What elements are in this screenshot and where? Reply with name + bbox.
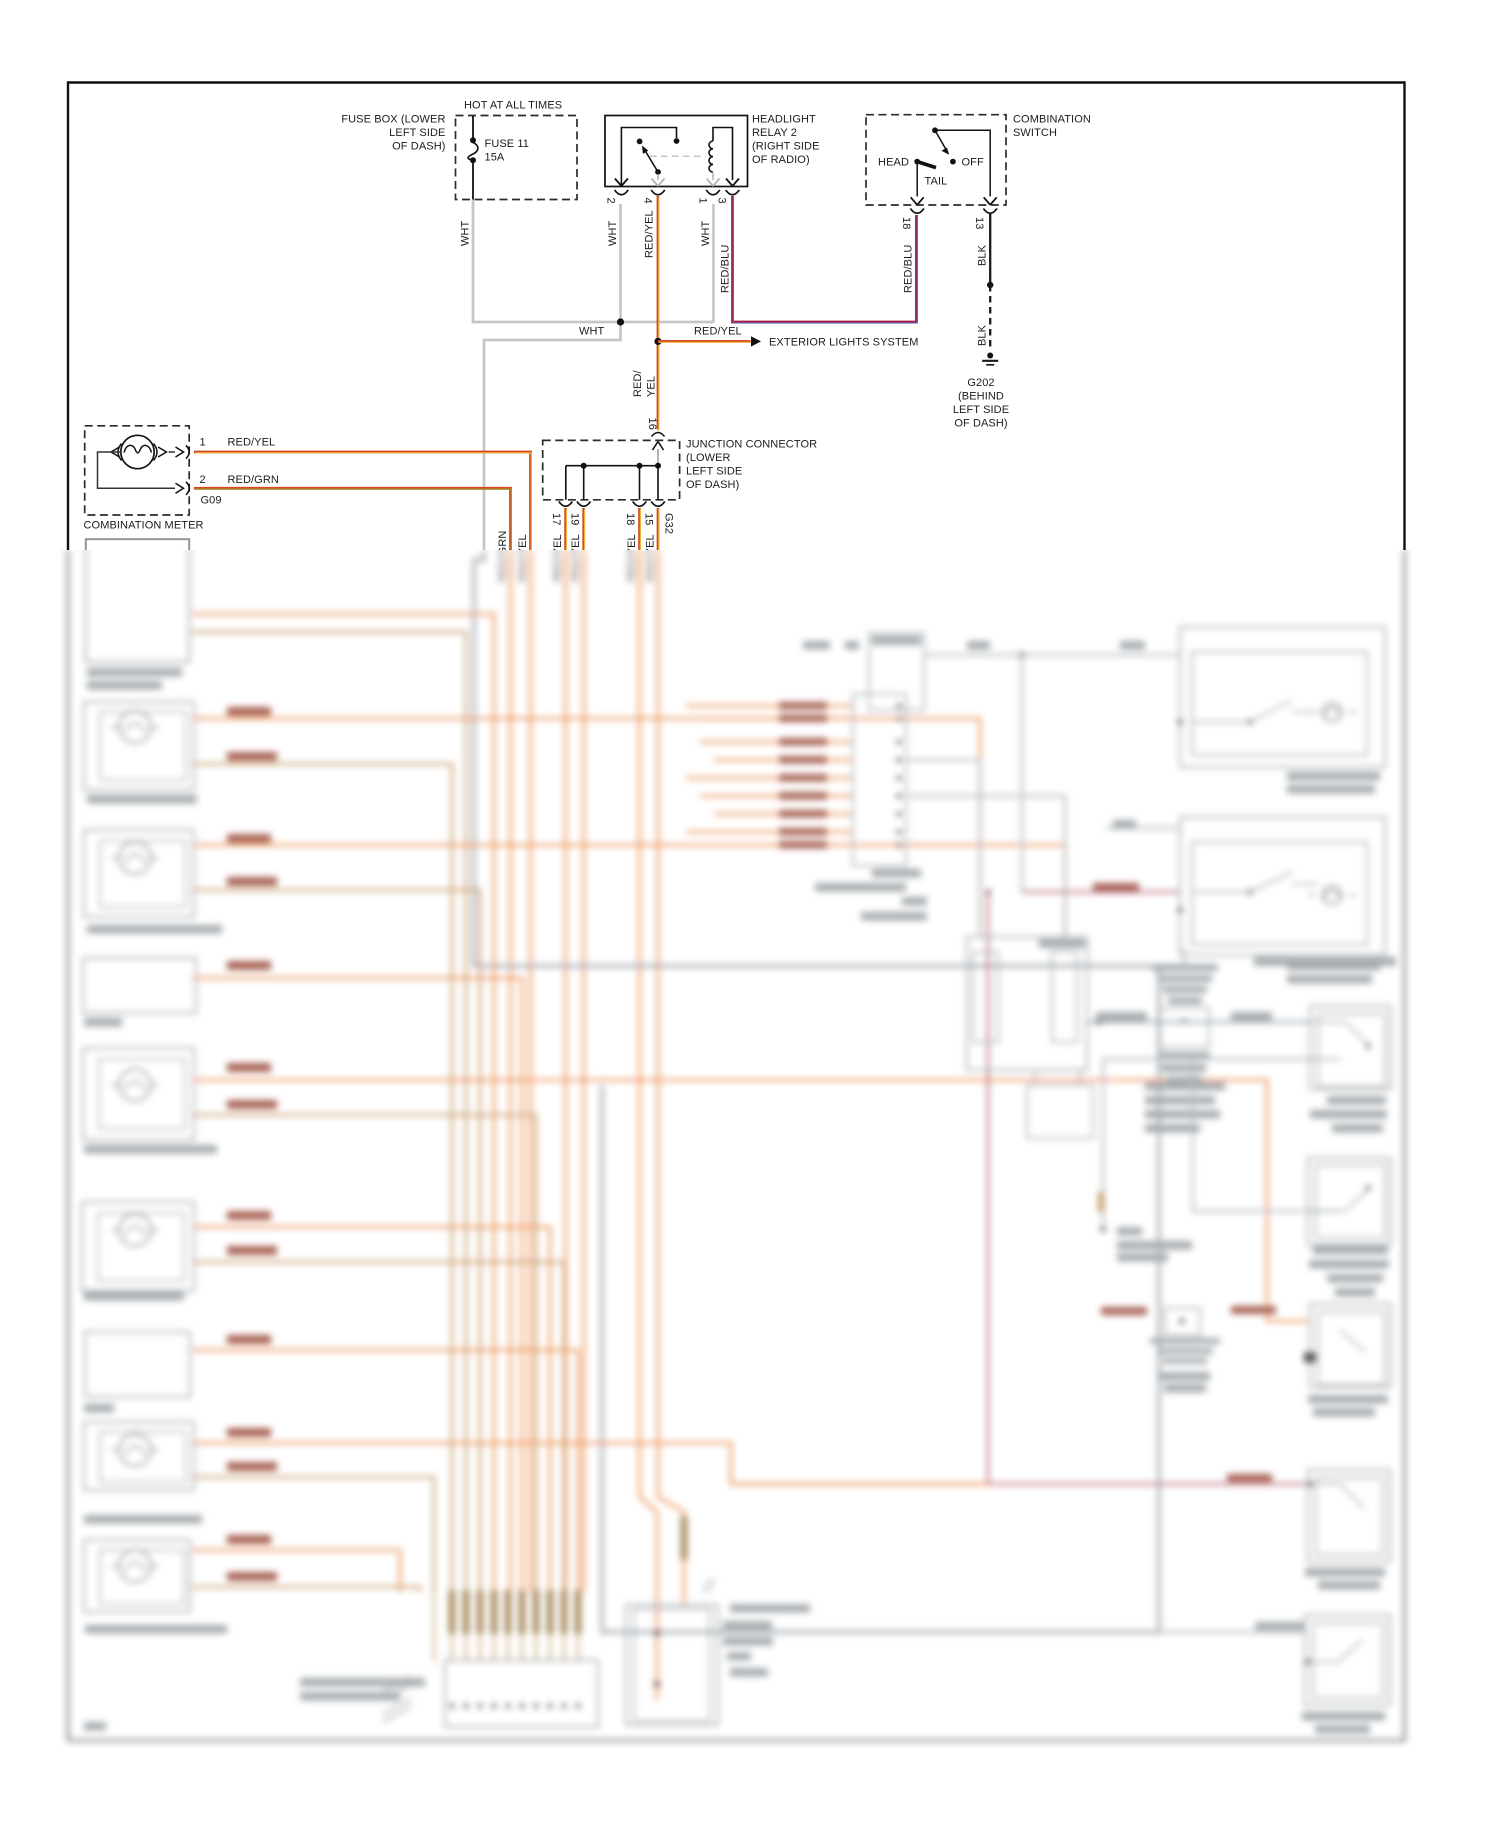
svg-text:2: 2 (200, 474, 206, 486)
svg-text:(RIGHT SIDE: (RIGHT SIDE (752, 141, 820, 153)
svg-text:HOT AT ALL TIMES: HOT AT ALL TIMES (464, 100, 562, 112)
svg-text:13: 13 (973, 217, 985, 229)
svg-text:OF RADIO): OF RADIO) (752, 154, 810, 166)
svg-text:18: 18 (900, 217, 912, 229)
svg-text:OF DASH): OF DASH) (954, 418, 1007, 430)
svg-text:LEFT SIDE: LEFT SIDE (686, 466, 742, 478)
svg-text:JUNCTION CONNECTOR: JUNCTION CONNECTOR (686, 439, 817, 451)
svg-text:OF DASH): OF DASH) (686, 479, 739, 491)
svg-text:1: 1 (200, 437, 206, 449)
svg-text:15: 15 (643, 513, 655, 525)
svg-text:15A: 15A (485, 152, 505, 164)
svg-text:OFF: OFF (962, 156, 984, 168)
svg-text:19: 19 (569, 513, 581, 525)
svg-text:2: 2 (605, 198, 617, 204)
svg-text:17: 17 (550, 513, 562, 525)
svg-text:18: 18 (624, 513, 636, 525)
svg-text:RED/BLU: RED/BLU (720, 245, 732, 293)
svg-text:WHT: WHT (579, 326, 605, 338)
svg-text:WHT: WHT (607, 220, 619, 246)
svg-text:TAIL: TAIL (925, 176, 948, 188)
svg-text:COMBINATION METER: COMBINATION METER (84, 520, 204, 532)
svg-text:FUSE 11: FUSE 11 (485, 138, 530, 150)
svg-text:COMBINATION: COMBINATION (1013, 114, 1091, 126)
svg-text:G32: G32 (663, 513, 675, 534)
svg-text:G09: G09 (201, 495, 222, 507)
svg-text:HEADLIGHT: HEADLIGHT (752, 114, 816, 126)
svg-text:FUSE BOX (LOWER: FUSE BOX (LOWER (341, 114, 445, 126)
svg-text:SWITCH: SWITCH (1013, 127, 1057, 139)
svg-text:BLK: BLK (977, 324, 989, 346)
svg-text:EXTERIOR LIGHTS SYSTEM: EXTERIOR LIGHTS SYSTEM (769, 337, 919, 349)
svg-text:RED/: RED/ (632, 369, 644, 397)
svg-text:WHT: WHT (700, 220, 712, 246)
svg-text:RED/YEL: RED/YEL (228, 437, 276, 449)
svg-text:OF DASH): OF DASH) (392, 141, 445, 153)
svg-text:RED/YEL: RED/YEL (694, 326, 742, 338)
svg-text:RED/GRN: RED/GRN (228, 474, 279, 486)
svg-text:HEAD: HEAD (878, 156, 909, 168)
svg-text:LEFT SIDE: LEFT SIDE (389, 127, 445, 139)
svg-text:(LOWER: (LOWER (686, 452, 731, 464)
svg-text:G202: G202 (967, 377, 994, 389)
svg-text:16: 16 (646, 418, 658, 430)
svg-text:BLK: BLK (977, 244, 989, 266)
svg-text:WHT: WHT (460, 220, 472, 246)
svg-text:1: 1 (697, 198, 709, 204)
svg-text:3: 3 (716, 198, 728, 204)
svg-text:RELAY 2: RELAY 2 (752, 127, 797, 139)
svg-text:RED/YEL: RED/YEL (644, 210, 656, 258)
svg-text:RED/BLU: RED/BLU (903, 245, 915, 293)
svg-text:YEL: YEL (646, 376, 658, 397)
svg-text:(BEHIND: (BEHIND (958, 391, 1004, 403)
svg-text:4: 4 (642, 198, 654, 204)
svg-text:LEFT SIDE: LEFT SIDE (953, 404, 1009, 416)
